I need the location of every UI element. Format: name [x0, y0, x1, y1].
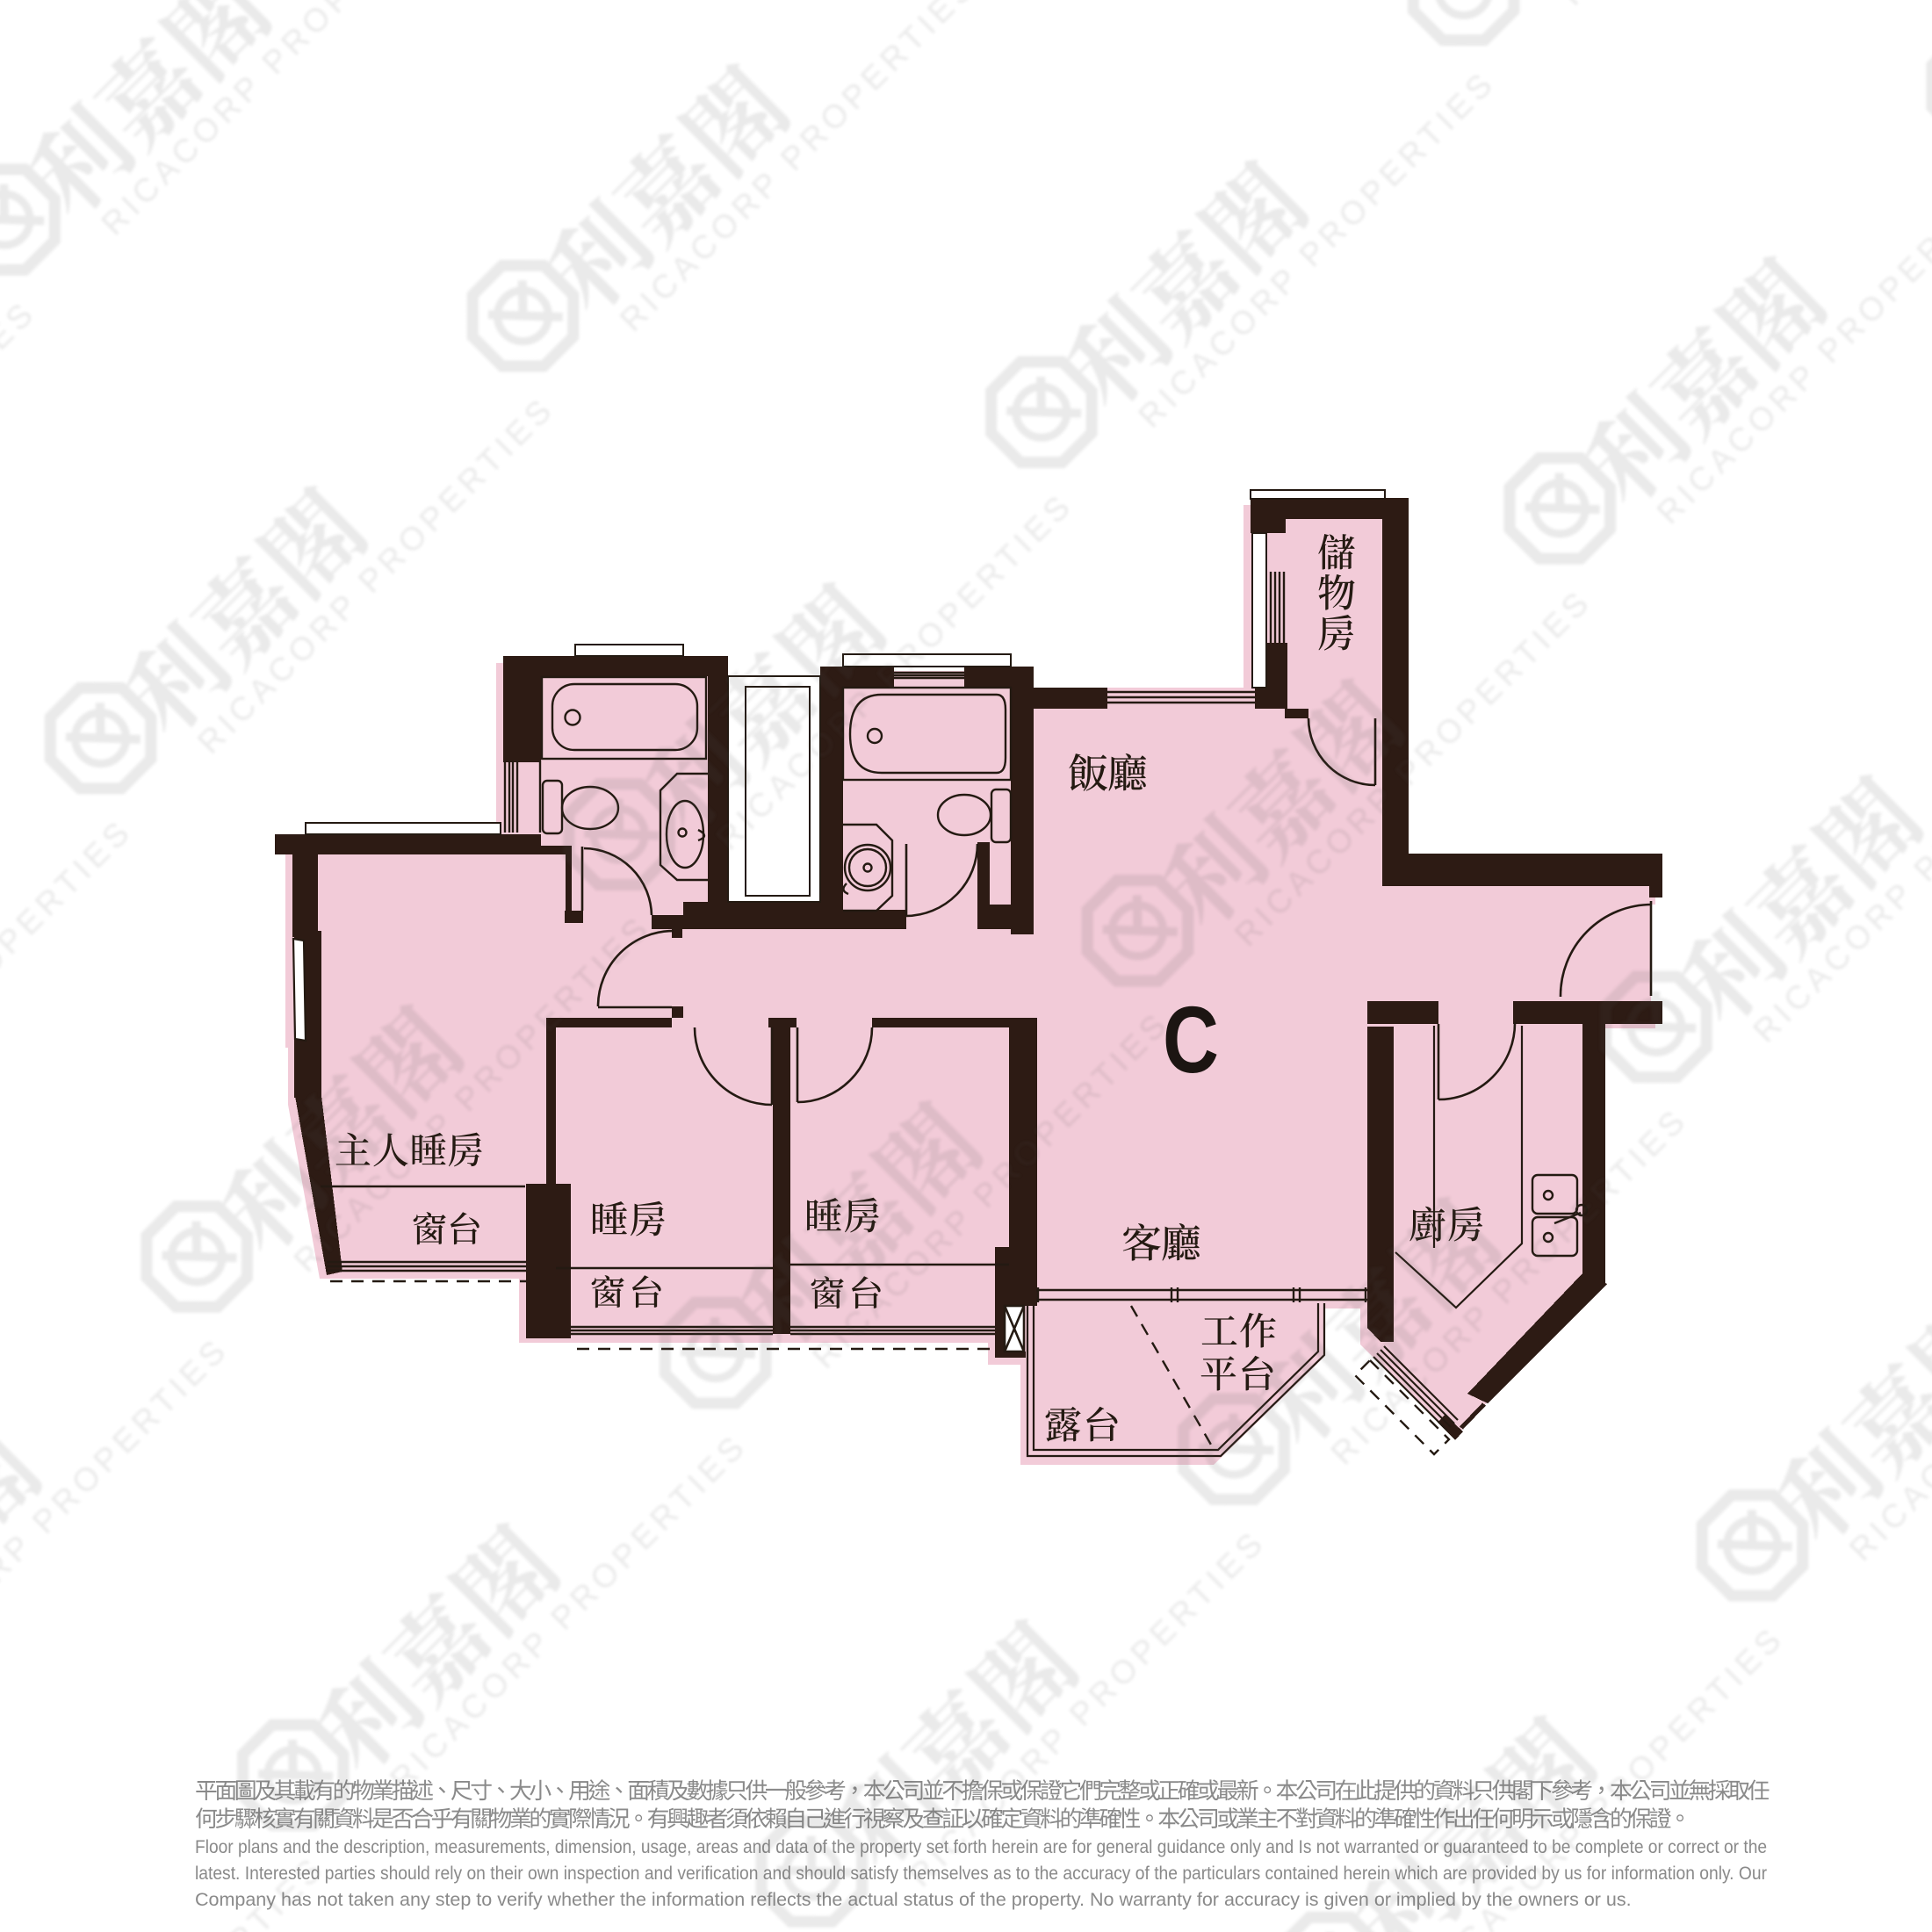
- svg-text:C: C: [1163, 987, 1219, 1092]
